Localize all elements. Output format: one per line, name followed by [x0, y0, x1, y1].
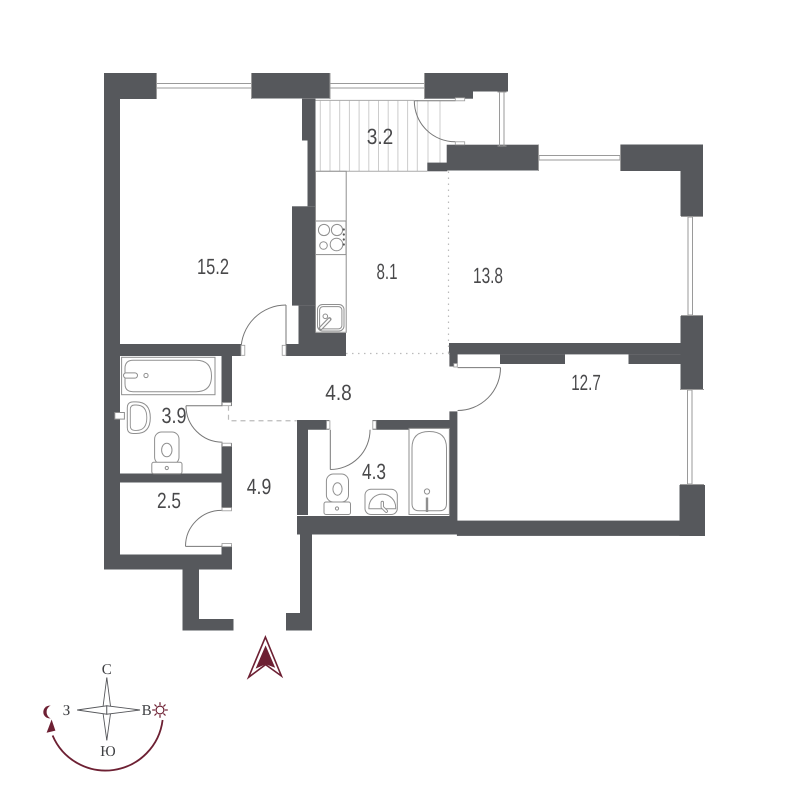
svg-text:13.8: 13.8	[473, 263, 503, 288]
svg-text:3.9: 3.9	[162, 403, 187, 428]
svg-text:4.8: 4.8	[325, 380, 352, 405]
svg-text:4.9: 4.9	[247, 474, 272, 499]
svg-text:15.2: 15.2	[197, 254, 229, 279]
svg-text:З: З	[63, 703, 71, 719]
svg-text:12.7: 12.7	[571, 370, 601, 395]
svg-text:8.1: 8.1	[377, 259, 398, 284]
svg-text:3.2: 3.2	[367, 124, 394, 149]
svg-text:Ю: Ю	[100, 744, 115, 760]
svg-text:С: С	[102, 662, 112, 678]
svg-text:В: В	[142, 703, 152, 719]
svg-text:4.3: 4.3	[362, 459, 386, 484]
svg-text:2.5: 2.5	[157, 488, 181, 513]
